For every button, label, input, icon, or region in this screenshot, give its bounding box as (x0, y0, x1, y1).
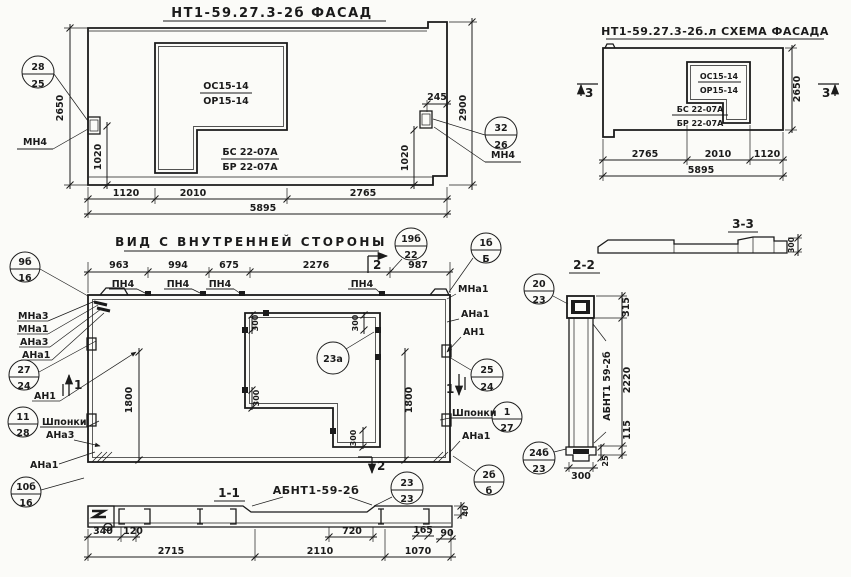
dim-2010: 2010 (180, 188, 207, 199)
section-1-1: 1-1 АБНТ1-59-2б 23 23 (84, 472, 470, 561)
pn4-label-3: ПН4 (209, 279, 232, 290)
schema-window-label-top2: ОР15-14 (700, 86, 739, 95)
dim-1020-right: 1020 (400, 144, 411, 171)
section-2-2-label: АБНТ1 59-2б (602, 351, 613, 421)
callout-23a: 23а (317, 332, 374, 374)
section-mark-2-top: 2 (368, 256, 387, 273)
callout-23-23: 23 23 (374, 472, 423, 506)
dim-2650-right: 2650 (792, 75, 803, 102)
dim-2765: 2765 (350, 188, 376, 199)
dim-300-33: 300 (787, 237, 796, 253)
dim-2220: 2220 (622, 366, 633, 393)
callout-25-24: 25 24 (449, 357, 503, 393)
section-1-1-profile (88, 506, 452, 527)
svg-text:Шпонки: Шпонки (452, 408, 497, 419)
callout-1-27: 1 27 (492, 402, 522, 434)
dim-90: 90 (440, 528, 454, 539)
section-2-2-title: 2-2 (573, 258, 595, 272)
inner-view: ВИД С ВНУТРЕННЕЙ СТОРОНЫ (8, 228, 522, 509)
section-2-2: 2-2 20 23 АБНТ1 59-2б 315 2220 115 (523, 258, 633, 482)
dim-340: 340 (93, 526, 113, 537)
svg-text:24: 24 (17, 381, 31, 392)
svg-text:10б: 10б (16, 482, 36, 493)
section-mark-3-right: 3 (818, 84, 839, 100)
svg-text:9б: 9б (18, 257, 32, 268)
label-mna3: МНа3 (18, 311, 48, 322)
facade-window-label-top: ОС15-14 (203, 81, 249, 92)
callout-2b-b: 2б б (453, 456, 504, 497)
schema-window-label-bot: БС 22-07А (677, 105, 724, 114)
pn4-label-2: ПН4 (167, 279, 190, 290)
svg-text:23: 23 (532, 464, 545, 475)
callout-27-24: 27 24 (9, 341, 96, 392)
dim-994: 994 (168, 260, 188, 271)
right-edge-labels: МНа1 АНа1 АН1 (447, 284, 489, 352)
facade-dimensions: 2650 1020 2900 245 1020 1120 2010 2765 5 (55, 18, 477, 218)
dim-1020-left: 1020 (93, 143, 104, 170)
dim-1800-left: 1800 (124, 386, 135, 413)
section-mark-2-bottom: 2 (358, 457, 385, 473)
schema-title: НТ1-59.27.3-2б.л СХЕМА ФАСАДА (601, 25, 829, 38)
section-3-3: 3-3 300 (598, 217, 802, 256)
label-ana3: АНа3 (20, 337, 48, 348)
svg-text:1: 1 (446, 382, 454, 396)
dim-120: 120 (123, 526, 143, 537)
inner-top-dimensions: 963 994 675 2276 987 (84, 260, 454, 293)
section-2-2-profile (569, 318, 593, 447)
inner-panel-outline (88, 295, 450, 462)
svg-text:МН4: МН4 (491, 150, 515, 161)
facade-window-label-bot: БС 22-07А (222, 147, 278, 158)
dim-245: 245 (427, 92, 447, 103)
svg-text:24: 24 (480, 382, 494, 393)
svg-text:б: б (486, 486, 493, 497)
callout-24b-23: 24б 23 (523, 442, 566, 475)
svg-text:23: 23 (400, 494, 413, 505)
callout-10b-16: 10б 16 (11, 477, 84, 509)
svg-text:2: 2 (377, 459, 385, 473)
dim-5895: 5895 (250, 203, 276, 214)
svg-text:1: 1 (504, 407, 511, 418)
svg-text:3: 3 (822, 86, 830, 100)
dim-2900-right: 2900 (458, 94, 469, 121)
drawing-canvas: НТ1-59.27.3-2б ФАСАД ОС15-14 ОР15-14 БС … (0, 0, 851, 577)
dim-1070: 1070 (405, 546, 432, 557)
svg-text:27: 27 (500, 423, 513, 434)
dim-1120: 1120 (754, 149, 781, 160)
svg-text:1б: 1б (479, 238, 493, 249)
callout-bottom-value: 25 (31, 79, 44, 90)
dim-2276: 2276 (303, 260, 330, 271)
dim-963: 963 (109, 260, 129, 271)
facade-window-label-bot2: БР 22-07А (222, 162, 278, 173)
svg-text:16: 16 (19, 498, 33, 509)
svg-text:23а: 23а (323, 354, 343, 365)
svg-text:27: 27 (17, 365, 30, 376)
rebar-marks (119, 509, 429, 524)
dim-300: 300 (571, 471, 591, 482)
label-an1-right: АН1 (463, 327, 485, 338)
schema-window-label-top: ОС15-14 (700, 72, 739, 81)
dim-115: 115 (622, 420, 633, 440)
label-mna1: МНа1 (18, 324, 48, 335)
svg-text:2: 2 (373, 258, 381, 272)
section-mark-1-right: 1 (446, 374, 465, 396)
svg-text:22: 22 (404, 250, 417, 261)
dim-5895: 5895 (688, 165, 714, 176)
svg-text:2б: 2б (482, 470, 496, 481)
corner-hatch-left (92, 452, 112, 462)
svg-text:АНа3: АНа3 (46, 430, 74, 441)
section-1-1-title: 1-1 (218, 486, 240, 500)
callout-top-value: 28 (31, 62, 45, 73)
dim-2715: 2715 (158, 546, 184, 557)
label-ana1-right: АНа1 (461, 309, 489, 320)
svg-text:Б: Б (482, 254, 489, 265)
opening-plates (242, 310, 381, 434)
dim-720: 720 (342, 526, 362, 537)
svg-text:1: 1 (74, 378, 82, 392)
svg-text:28: 28 (16, 428, 30, 439)
section-3-3-title: 3-3 (732, 217, 754, 231)
pn4-label-4: ПН4 (351, 279, 374, 290)
svg-text:300: 300 (251, 314, 260, 331)
pn4-label-1: ПН4 (112, 279, 135, 290)
section-1-1-label: АБНТ1-59-2б (273, 484, 360, 497)
dim-2110: 2110 (307, 546, 334, 557)
svg-text:АНа1: АНа1 (30, 460, 58, 471)
dim-40: 40 (461, 505, 470, 517)
label-ana3-left-low: АНа3 (46, 430, 100, 446)
dim-2765: 2765 (632, 149, 658, 160)
anchor-label-mn4-left: МН4 (17, 129, 88, 149)
label-mna1-right: МНа1 (458, 284, 488, 295)
svg-text:Шпонки: Шпонки (42, 417, 87, 428)
dim-165: 165 (413, 525, 433, 536)
svg-text:300: 300 (349, 429, 358, 446)
inner-window-opening (245, 313, 380, 447)
dim-2650-left: 2650 (55, 94, 66, 121)
dim-315: 315 (621, 297, 632, 317)
dim-987: 987 (408, 260, 428, 271)
svg-text:11: 11 (16, 412, 29, 423)
svg-text:АН1: АН1 (34, 391, 56, 402)
facade-window-label-top2: ОР15-14 (203, 96, 249, 107)
callout-11-28: 11 28 (8, 407, 38, 439)
label-ana1-left-bottom: АНа1 (30, 452, 95, 471)
dim-25: 25 (601, 455, 610, 467)
svg-text:23: 23 (400, 478, 413, 489)
opening-300-dims: 300 300 300 300 (249, 312, 368, 451)
callout-32-26: 32 26 (433, 117, 517, 151)
svg-text:МН4: МН4 (23, 137, 47, 148)
svg-text:300: 300 (351, 314, 360, 331)
svg-text:23: 23 (532, 295, 545, 306)
callout-9b-16: 9б 16 (10, 252, 88, 296)
dim-2010: 2010 (705, 149, 732, 160)
callout-20-23: 20 23 (524, 274, 568, 306)
left-edge-labels: МНа3 МНа1 АНа3 АНа1 (17, 301, 104, 361)
svg-text:20: 20 (532, 279, 546, 290)
inner-title: ВИД С ВНУТРЕННЕЙ СТОРОНЫ (115, 234, 387, 249)
svg-text:3: 3 (585, 86, 593, 100)
label-ana1-right-bottom: АНа1 (450, 431, 490, 452)
facade-view: НТ1-59.27.3-2б ФАСАД ОС15-14 ОР15-14 БС … (17, 6, 521, 218)
svg-text:24б: 24б (529, 448, 549, 459)
callout-top-value: 32 (494, 123, 507, 134)
section-1-1-dims: 340 120 720 165 90 2715 2110 1070 40 (84, 502, 470, 561)
schema-window-label-bot2: БР 22-07А (677, 119, 724, 128)
svg-text:16: 16 (18, 273, 32, 284)
svg-text:300: 300 (252, 389, 261, 406)
dim-1120: 1120 (113, 188, 140, 199)
section-mark-3-left: 3 (577, 84, 598, 100)
blueprint-page: НТ1-59.27.3-2б ФАСАД ОС15-14 ОР15-14 БС … (0, 0, 851, 577)
facade-title: НТ1-59.27.3-2б ФАСАД (171, 6, 372, 21)
schema-view: НТ1-59.27.3-2б.л СХЕМА ФАСАДА ОС15-14 ОР… (577, 25, 839, 181)
section-3-3-profile (598, 237, 787, 253)
svg-text:АНа1: АНа1 (462, 431, 490, 442)
dim-1800-right: 1800 (404, 386, 415, 413)
dim-675: 675 (219, 260, 239, 271)
svg-text:19б: 19б (401, 234, 421, 245)
label-ana1: АНа1 (22, 350, 50, 361)
svg-text:25: 25 (480, 365, 493, 376)
